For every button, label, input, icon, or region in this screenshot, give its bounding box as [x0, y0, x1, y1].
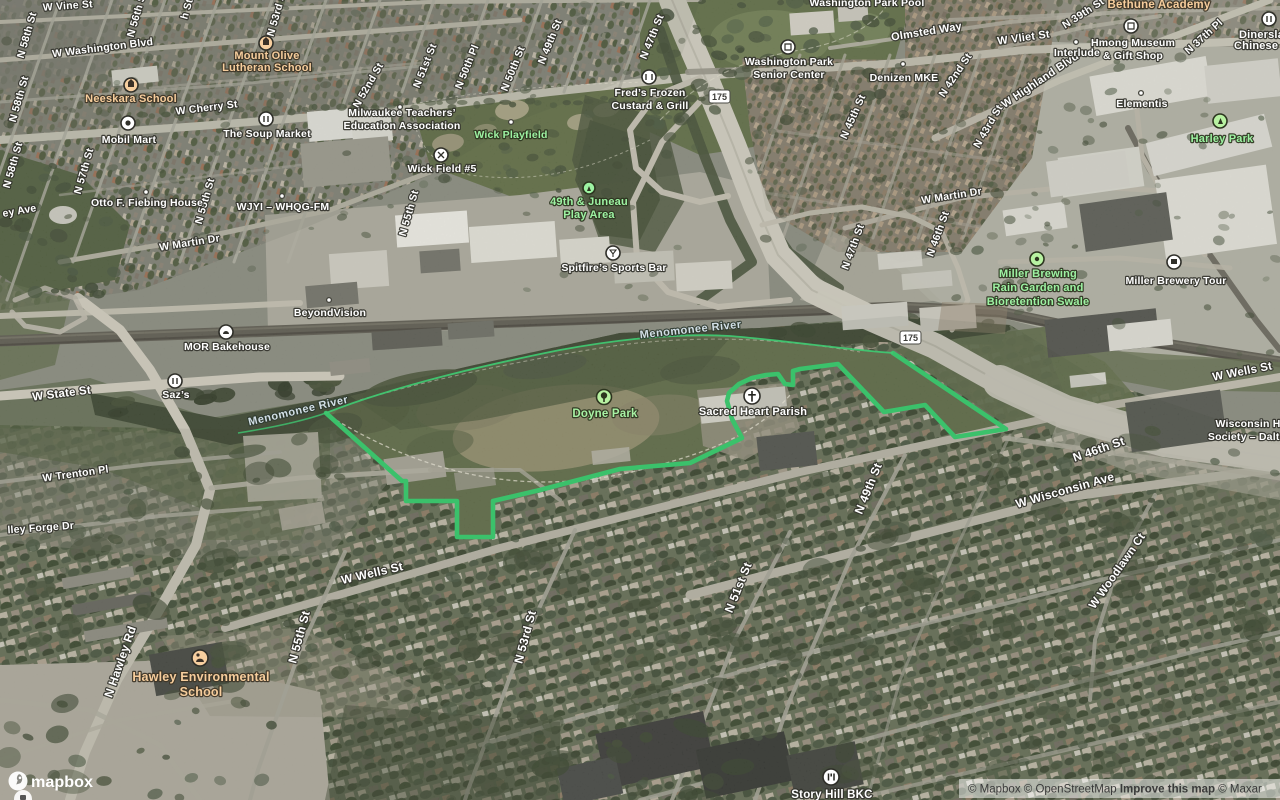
- svg-text:Hmong Museum: Hmong Museum: [1091, 37, 1175, 49]
- svg-text:Washington Park Pool: Washington Park Pool: [809, 0, 924, 9]
- svg-text:Miller Brewery Tour: Miller Brewery Tour: [1125, 275, 1226, 287]
- svg-text:Sacred Heart Parish: Sacred Heart Parish: [699, 406, 807, 418]
- svg-text:Wick Playfield: Wick Playfield: [474, 129, 547, 141]
- svg-text:Harley Park: Harley Park: [1191, 133, 1254, 145]
- svg-text:Miller Brewing: Miller Brewing: [999, 268, 1077, 280]
- svg-text:BeyondVision: BeyondVision: [294, 307, 366, 319]
- svg-text:Saz’s: Saz’s: [162, 389, 189, 401]
- svg-text:© Mapbox © OpenStreetMap Impro: © Mapbox © OpenStreetMap Improve this ma…: [968, 784, 1262, 796]
- svg-text:School: School: [180, 685, 223, 699]
- svg-text:Mount Olive: Mount Olive: [234, 50, 299, 62]
- svg-text:Lutheran School: Lutheran School: [222, 62, 312, 74]
- svg-text:The Soup Market: The Soup Market: [223, 128, 311, 140]
- svg-text:MOR Bakehouse: MOR Bakehouse: [184, 341, 270, 353]
- svg-text:Custard & Grill: Custard & Grill: [611, 100, 688, 112]
- svg-text:Bioretention Swale: Bioretention Swale: [987, 296, 1090, 308]
- svg-text:Senior Center: Senior Center: [753, 69, 824, 81]
- svg-text:Bethune Academy: Bethune Academy: [1108, 0, 1211, 11]
- svg-text:Mobil Mart: Mobil Mart: [102, 134, 157, 146]
- svg-text:Wick Field #5: Wick Field #5: [407, 163, 476, 175]
- svg-text:& Gift Shop: & Gift Shop: [1103, 50, 1163, 62]
- svg-text:mapbox: mapbox: [31, 774, 93, 791]
- svg-text:WJYI – WHQG-FM: WJYI – WHQG-FM: [237, 201, 330, 213]
- svg-text:Interlude: Interlude: [1054, 47, 1100, 59]
- svg-text:Play Area: Play Area: [563, 209, 615, 221]
- svg-text:175: 175: [712, 92, 727, 102]
- svg-text:175: 175: [903, 333, 918, 343]
- svg-text:Wisconsin H: Wisconsin H: [1215, 418, 1280, 430]
- svg-text:49th & Juneau: 49th & Juneau: [550, 196, 628, 208]
- svg-text:Washington Park: Washington Park: [745, 56, 833, 68]
- svg-text:Chinese Cu: Chinese Cu: [1234, 40, 1280, 52]
- svg-text:Denizen MKE: Denizen MKE: [870, 72, 939, 84]
- svg-text:Neeskara School: Neeskara School: [85, 93, 177, 105]
- svg-text:Fred’s Frozen: Fred’s Frozen: [614, 87, 685, 99]
- svg-text:Society – Dalto: Society – Dalto: [1208, 431, 1280, 443]
- svg-text:Hawley Environmental: Hawley Environmental: [132, 670, 269, 684]
- svg-text:Elementis: Elementis: [1116, 98, 1167, 110]
- svg-text:Spitfire’s Sports Bar: Spitfire’s Sports Bar: [561, 262, 666, 274]
- svg-text:Rain Garden and: Rain Garden and: [992, 282, 1083, 294]
- svg-text:Doyne Park: Doyne Park: [572, 408, 638, 420]
- svg-text:Otto F. Fiebing House: Otto F. Fiebing House: [91, 197, 203, 209]
- svg-text:Story Hill BKC: Story Hill BKC: [791, 789, 872, 800]
- svg-text:Milwaukee Teachers’: Milwaukee Teachers’: [348, 107, 456, 119]
- svg-text:Education Association: Education Association: [344, 120, 461, 132]
